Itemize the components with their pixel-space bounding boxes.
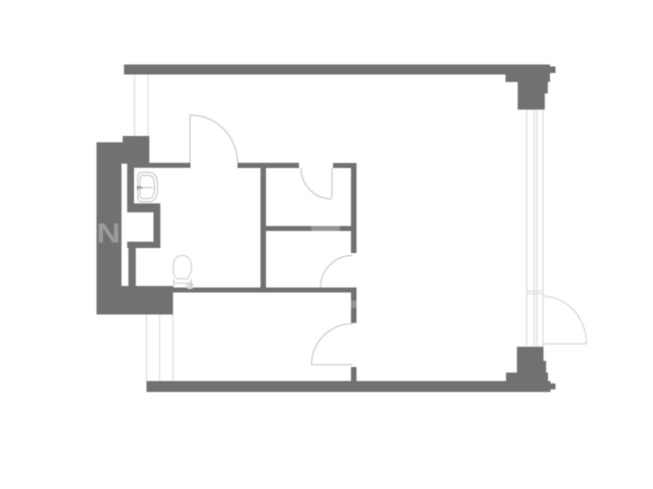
svg-text:N: N [97, 218, 121, 249]
